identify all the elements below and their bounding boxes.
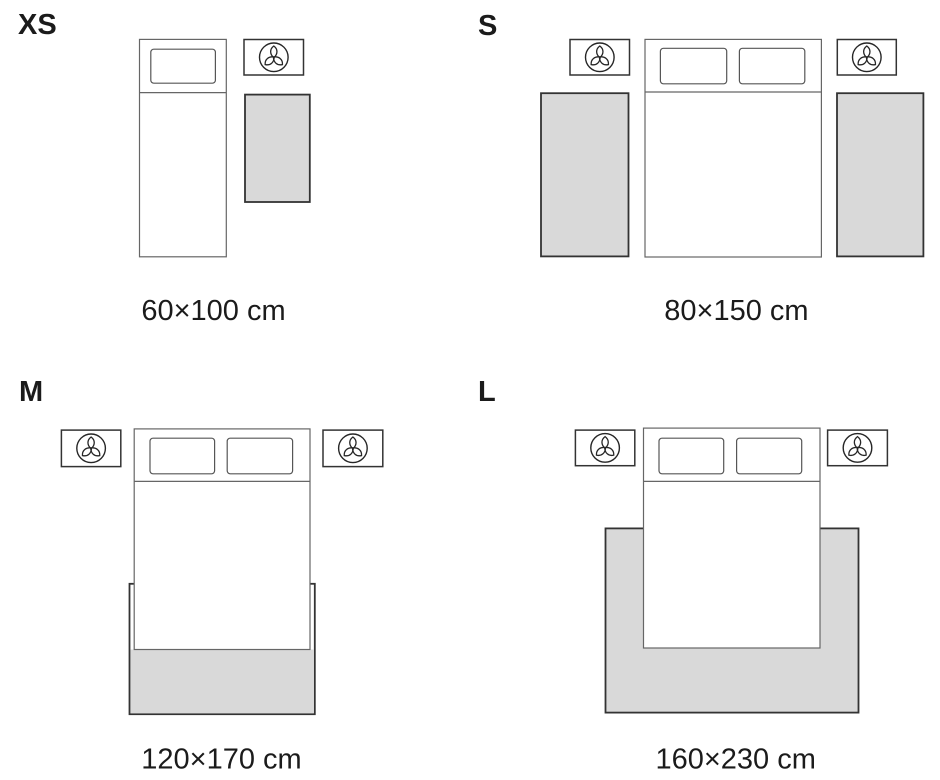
svg-text:XS: XS [18, 9, 57, 41]
svg-text:S: S [478, 10, 497, 42]
svg-text:80×150 cm: 80×150 cm [664, 295, 808, 327]
svg-text:120×170 cm: 120×170 cm [141, 744, 301, 776]
svg-text:160×230 cm: 160×230 cm [655, 744, 815, 776]
svg-text:60×100 cm: 60×100 cm [141, 295, 285, 327]
svg-text:L: L [478, 376, 496, 408]
svg-text:M: M [19, 376, 43, 408]
